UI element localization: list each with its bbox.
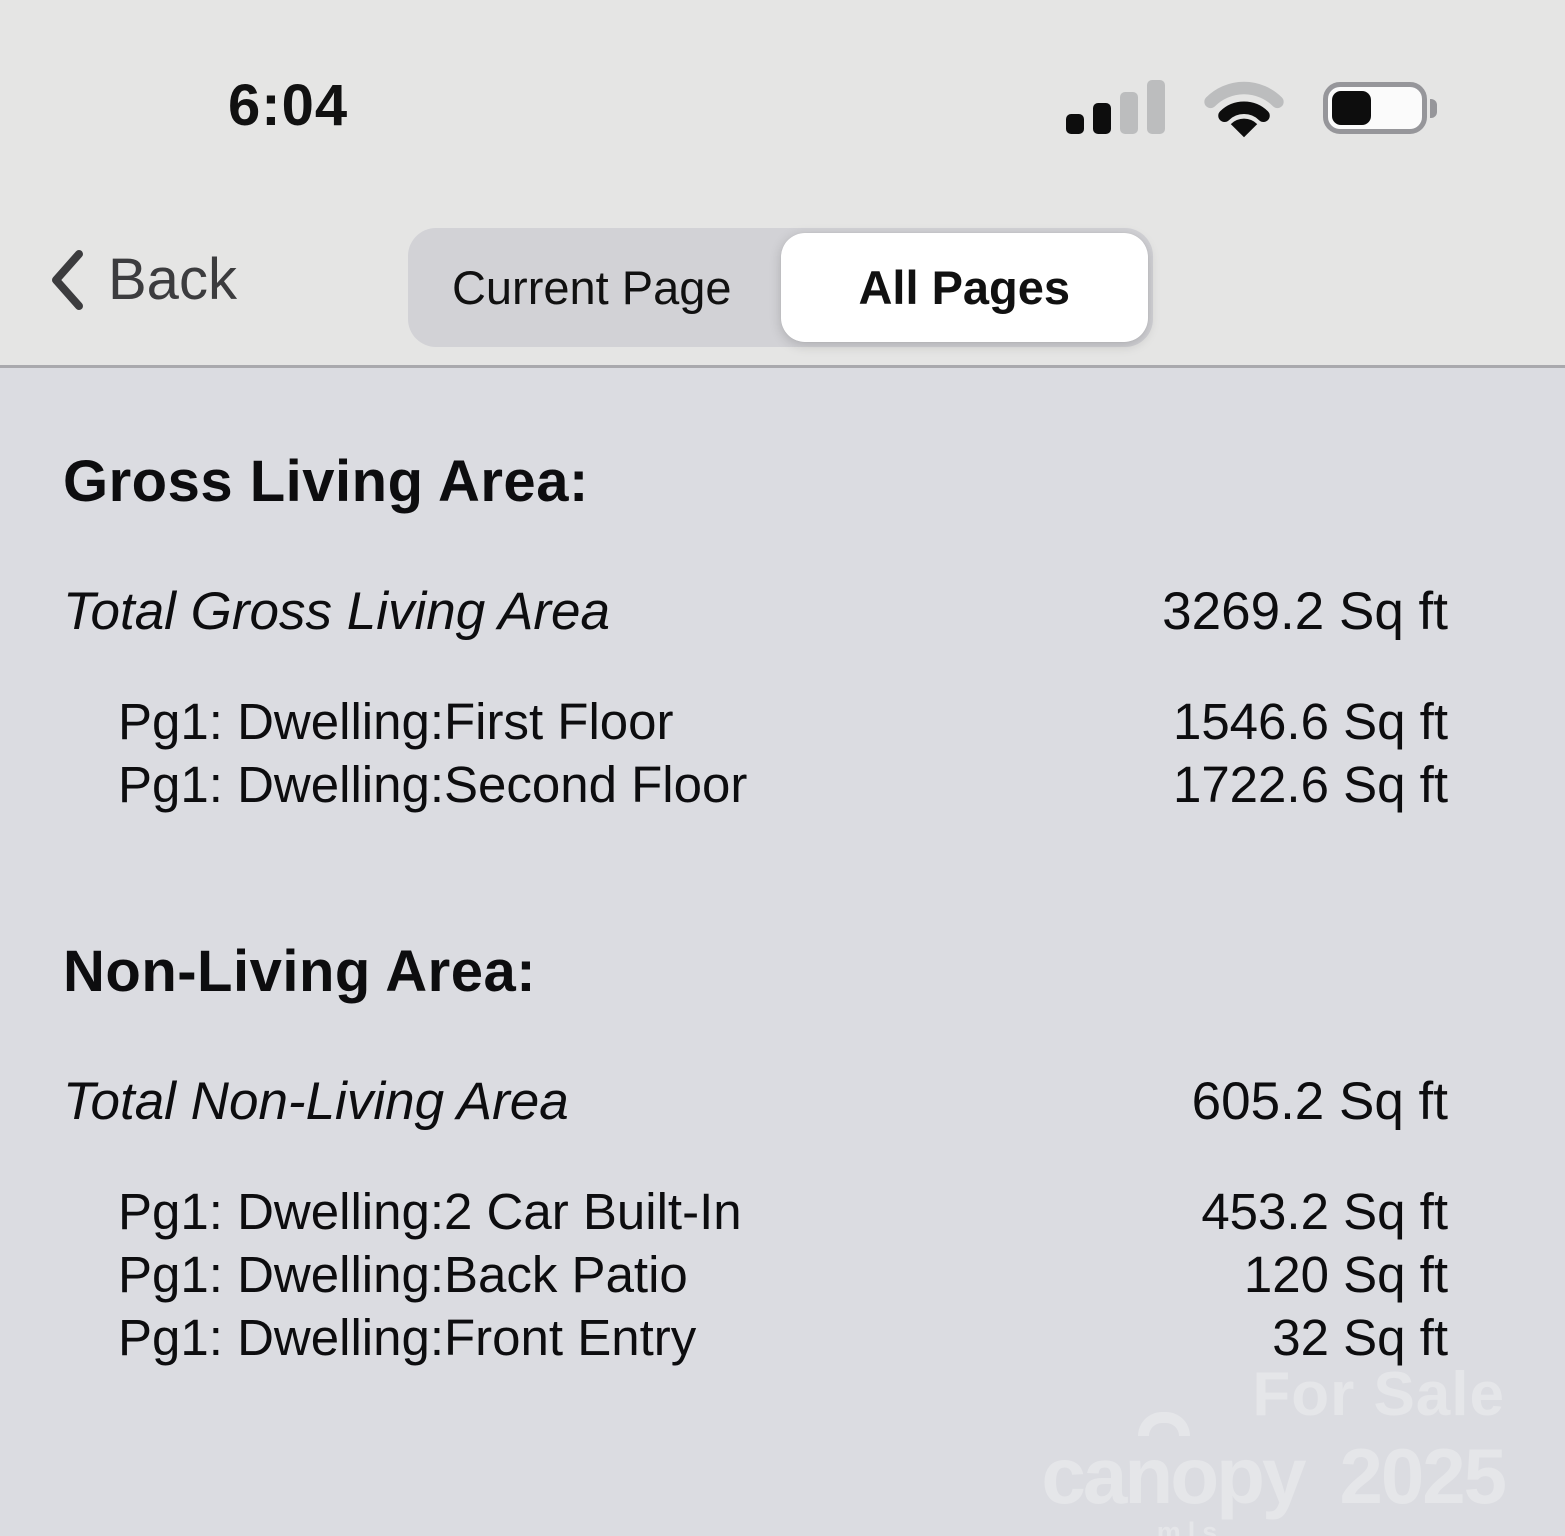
segment-current-page[interactable]: Current Page	[408, 228, 776, 347]
row-value: 453.2 Sq ft	[1201, 1180, 1448, 1243]
total-value: 3269.2 Sq ft	[1162, 581, 1448, 642]
canopy-arc-icon	[1138, 1412, 1190, 1436]
total-label: Total Gross Living Area	[63, 581, 610, 642]
signal-bar	[1066, 114, 1084, 134]
status-time: 6:04	[228, 72, 348, 139]
table-row: Pg1: Dwelling:First Floor 1546.6 Sq ft	[63, 690, 1448, 753]
watermark-brand-line: canopy MLS 2025	[1041, 1436, 1505, 1516]
table-row: Pg1: Dwelling:Back Patio 120 Sq ft	[63, 1243, 1448, 1306]
total-value: 605.2 Sq ft	[1192, 1071, 1448, 1132]
detail-rows: Pg1: Dwelling:First Floor 1546.6 Sq ft P…	[63, 690, 1448, 816]
signal-bar	[1120, 92, 1138, 134]
page-scope-segmented-control: Current Page All Pages	[408, 228, 1153, 347]
watermark-for-sale: For Sale	[1041, 1364, 1505, 1426]
row-value: 120 Sq ft	[1244, 1243, 1448, 1306]
wifi-icon	[1201, 74, 1287, 138]
section-heading: Non-Living Area:	[63, 938, 1448, 1005]
canopy-wordmark: canopy	[1041, 1431, 1303, 1520]
area-report: Gross Living Area: Total Gross Living Ar…	[0, 368, 1565, 1536]
header: 6:04 Back	[0, 0, 1565, 368]
table-row: Pg1: Dwelling:Front Entry 32 Sq ft	[63, 1306, 1448, 1369]
table-row: Pg1: Dwelling:2 Car Built-In 453.2 Sq ft	[63, 1180, 1448, 1243]
battery-cap	[1430, 99, 1437, 118]
back-label: Back	[108, 246, 237, 313]
status-icons	[1066, 78, 1437, 136]
gross-living-area-section: Gross Living Area: Total Gross Living Ar…	[63, 448, 1448, 816]
watermark: For Sale canopy MLS 2025	[1041, 1364, 1505, 1516]
row-label: Pg1: Dwelling:2 Car Built-In	[63, 1180, 742, 1243]
row-value: 1722.6 Sq ft	[1173, 753, 1448, 816]
battery-body	[1323, 82, 1427, 134]
detail-rows: Pg1: Dwelling:2 Car Built-In 453.2 Sq ft…	[63, 1180, 1448, 1369]
watermark-year: 2025	[1339, 1437, 1505, 1515]
segment-all-pages[interactable]: All Pages	[781, 233, 1149, 342]
row-label: Pg1: Dwelling:First Floor	[63, 690, 674, 753]
table-row: Pg1: Dwelling:Second Floor 1722.6 Sq ft	[63, 753, 1448, 816]
canopy-logo: canopy MLS	[1041, 1436, 1303, 1516]
row-label: Pg1: Dwelling:Back Patio	[63, 1243, 688, 1306]
total-row: Total Non-Living Area 605.2 Sq ft	[63, 1071, 1448, 1132]
section-heading: Gross Living Area:	[63, 448, 1448, 515]
row-value: 32 Sq ft	[1272, 1306, 1448, 1369]
row-label: Pg1: Dwelling:Second Floor	[63, 753, 747, 816]
cellular-signal-icon	[1066, 80, 1165, 136]
battery-fill	[1332, 91, 1371, 125]
total-row: Total Gross Living Area 3269.2 Sq ft	[63, 581, 1448, 642]
mls-label: MLS	[1157, 1519, 1225, 1536]
screen: 6:04 Back	[0, 0, 1565, 1536]
non-living-area-section: Non-Living Area: Total Non-Living Area 6…	[63, 938, 1448, 1369]
chevron-left-icon	[50, 249, 84, 311]
back-button[interactable]: Back	[50, 246, 237, 313]
signal-bar	[1147, 80, 1165, 134]
total-label: Total Non-Living Area	[63, 1071, 569, 1132]
row-label: Pg1: Dwelling:Front Entry	[63, 1306, 696, 1369]
signal-bar	[1093, 103, 1111, 134]
row-value: 1546.6 Sq ft	[1173, 690, 1448, 753]
battery-icon	[1323, 82, 1437, 134]
